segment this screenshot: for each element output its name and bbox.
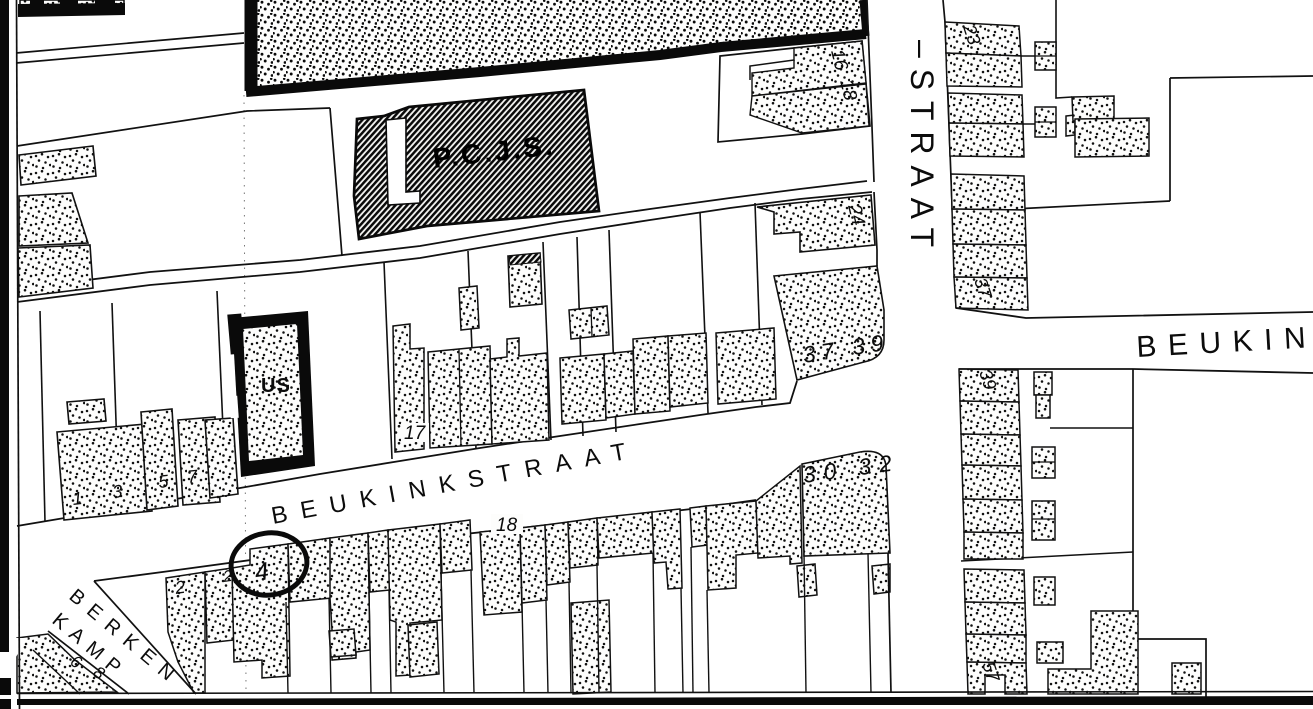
svg-text:US: US [261,375,291,397]
svg-text:–STRAAT: –STRAAT [904,40,940,250]
svg-text:17: 17 [404,423,427,444]
svg-text:3: 3 [111,481,123,502]
svg-text:18: 18 [496,515,518,536]
svg-text:1: 1 [71,488,83,509]
